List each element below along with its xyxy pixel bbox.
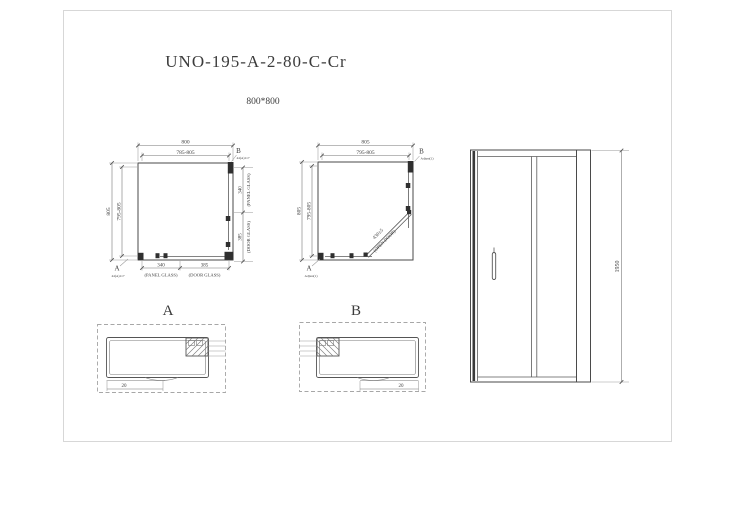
plan-left-dim-right-door: 385 xyxy=(238,233,243,241)
elevation-geometry xyxy=(471,150,591,382)
elevation-view: 1950 xyxy=(471,149,630,384)
plan-left-dim-top-outer: 800 xyxy=(181,140,190,146)
detail-b-geometry xyxy=(300,338,419,381)
detail-a-frame xyxy=(98,325,226,393)
sheet-border xyxy=(64,11,672,442)
plan-middle-corner-a-label: A xyxy=(306,265,311,273)
drawing-sheet: UNO-195-A-2-80-C-Cr 800*800 xyxy=(0,0,734,516)
plan-middle-dim-top-inner: 795-805 xyxy=(356,150,375,156)
plan-left-corner-a-note: 44(A)117 xyxy=(111,274,124,278)
elevation-dim-height: 1950 xyxy=(615,261,621,273)
plan-left-dim-left-outer: 805 xyxy=(106,207,112,216)
detail-a-dim: 20 xyxy=(122,384,128,389)
plan-left-dim-right-panel-label: (PANEL GLASS) xyxy=(246,173,251,206)
plan-left-dim-bottom-door-label: (DOOR GLASS) xyxy=(189,273,221,278)
plan-left-dim-bottom-panel: 340 xyxy=(157,263,165,268)
plan-left-corner-b-label: B xyxy=(236,147,241,155)
detail-a-view: A 20 xyxy=(98,303,226,393)
plan-left-dim-right-door-label: (DOOR GLASS) xyxy=(246,221,251,253)
door-handle xyxy=(492,253,495,280)
plan-left-dim-bottom-door: 385 xyxy=(201,263,209,268)
detail-a-label: A xyxy=(163,303,174,319)
plan-middle-corner-markers: A Adjust(1) B Adjust(1) xyxy=(305,148,434,279)
elevation-dimension: 1950 xyxy=(592,149,630,384)
plan-left-corner-a-label: A xyxy=(114,265,119,273)
plan-left-view: 800 785-805 805 795-805 340 (PANEL xyxy=(106,140,253,279)
detail-b-dim: 20 xyxy=(399,384,405,389)
detail-a-dimension: 20 xyxy=(107,381,163,391)
plan-middle-geometry xyxy=(318,161,414,260)
plan-left-geometry xyxy=(138,162,234,260)
detail-b-dimension: 20 xyxy=(360,381,419,391)
plan-left-dim-bottom-panel-label: (PANEL GLASS) xyxy=(145,273,178,278)
plan-middle-corner-b-label: B xyxy=(419,148,424,156)
technical-drawing-canvas: UNO-195-A-2-80-C-Cr 800*800 xyxy=(0,0,734,516)
plan-left-dim-left-inner: 795-805 xyxy=(116,202,122,221)
plan-middle-dim-top-outer: 805 xyxy=(361,140,370,146)
detail-b-view: B 20 xyxy=(300,303,426,392)
detail-b-frame xyxy=(300,323,426,392)
plan-left-dim-right-panel: 340 xyxy=(238,186,243,194)
plan-middle-corner-b-note: Adjust(1) xyxy=(421,157,434,161)
plan-middle-dim-left-outer: 805 xyxy=(296,207,302,216)
plan-middle-corner-a-note: Adjust(1) xyxy=(305,274,318,278)
drawing-size-label: 800*800 xyxy=(246,97,280,107)
detail-a-geometry xyxy=(107,338,226,381)
plan-left-dim-top-inner: 785-805 xyxy=(176,150,195,156)
drawing-title: UNO-195-A-2-80-C-Cr xyxy=(165,52,346,71)
plan-middle-dim-left-inner: 795-805 xyxy=(307,202,313,221)
plan-middle-view: 805 795-805 805 795-805 430±5 (OPEN DOOR… xyxy=(296,140,433,279)
detail-b-label: B xyxy=(351,303,361,319)
plan-middle-dimensions: 805 795-805 805 795-805 430±5 (OPEN DOOR… xyxy=(296,140,415,262)
plan-left-corner-b-note: 44(A)117 xyxy=(236,156,249,160)
